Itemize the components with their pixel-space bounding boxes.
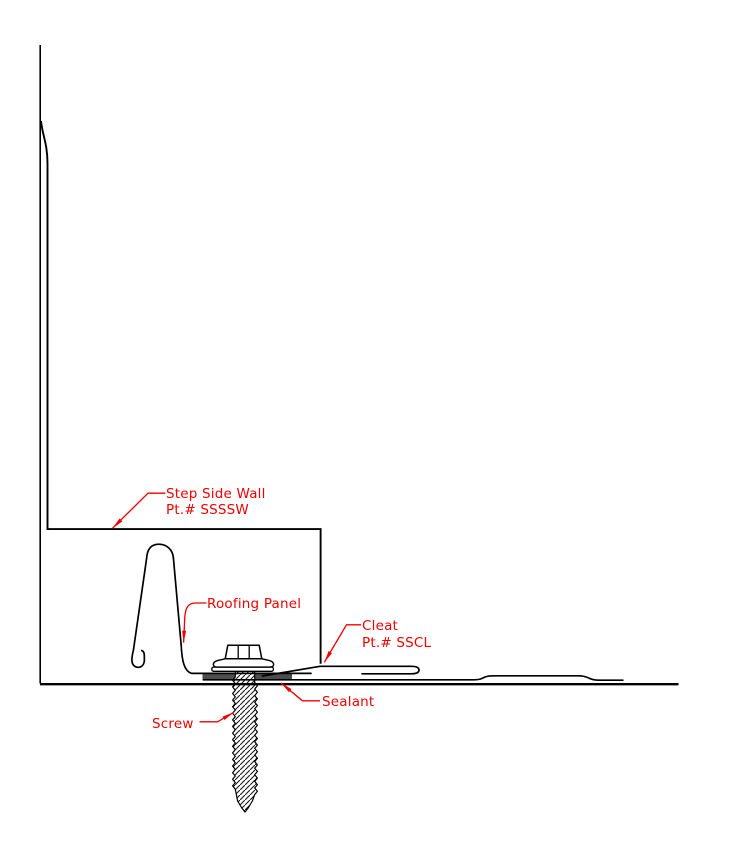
- roofing-panel-name: Roofing Panel: [207, 596, 301, 612]
- cleat-name: Cleat: [362, 618, 398, 634]
- screw-name: Screw: [152, 716, 194, 732]
- cleat-label: Cleat Pt.# SSCL: [362, 618, 431, 652]
- detail-drawing-canvas: Step Side Wall Pt.# SSSSW Roofing Panel …: [0, 0, 729, 845]
- roofing-panel-leader: [184, 603, 207, 643]
- screw-flange: [213, 659, 273, 667]
- step-side-wall-name: Step Side Wall: [166, 486, 266, 502]
- cleat-leader: [324, 625, 361, 663]
- screw-hex-head: [225, 645, 262, 659]
- step-side-wall-leader: [113, 493, 166, 528]
- sealant-name: Sealant: [322, 694, 374, 710]
- sealant-leader: [281, 683, 320, 701]
- roofing-panel-label: Roofing Panel: [207, 596, 301, 612]
- sealant-label: Sealant: [322, 694, 374, 710]
- step-side-wall-part-number: Pt.# SSSSW: [166, 502, 266, 518]
- screw-label: Screw: [152, 716, 194, 732]
- screw-shaft: [233, 669, 258, 812]
- cleat-part-number: Pt.# SSCL: [362, 635, 431, 652]
- step-side-wall-flashing-line: [41, 121, 321, 664]
- detail-drawing-linework: [0, 0, 729, 845]
- screw-leader: [200, 712, 234, 722]
- step-side-wall-label: Step Side Wall Pt.# SSSSW: [166, 486, 266, 518]
